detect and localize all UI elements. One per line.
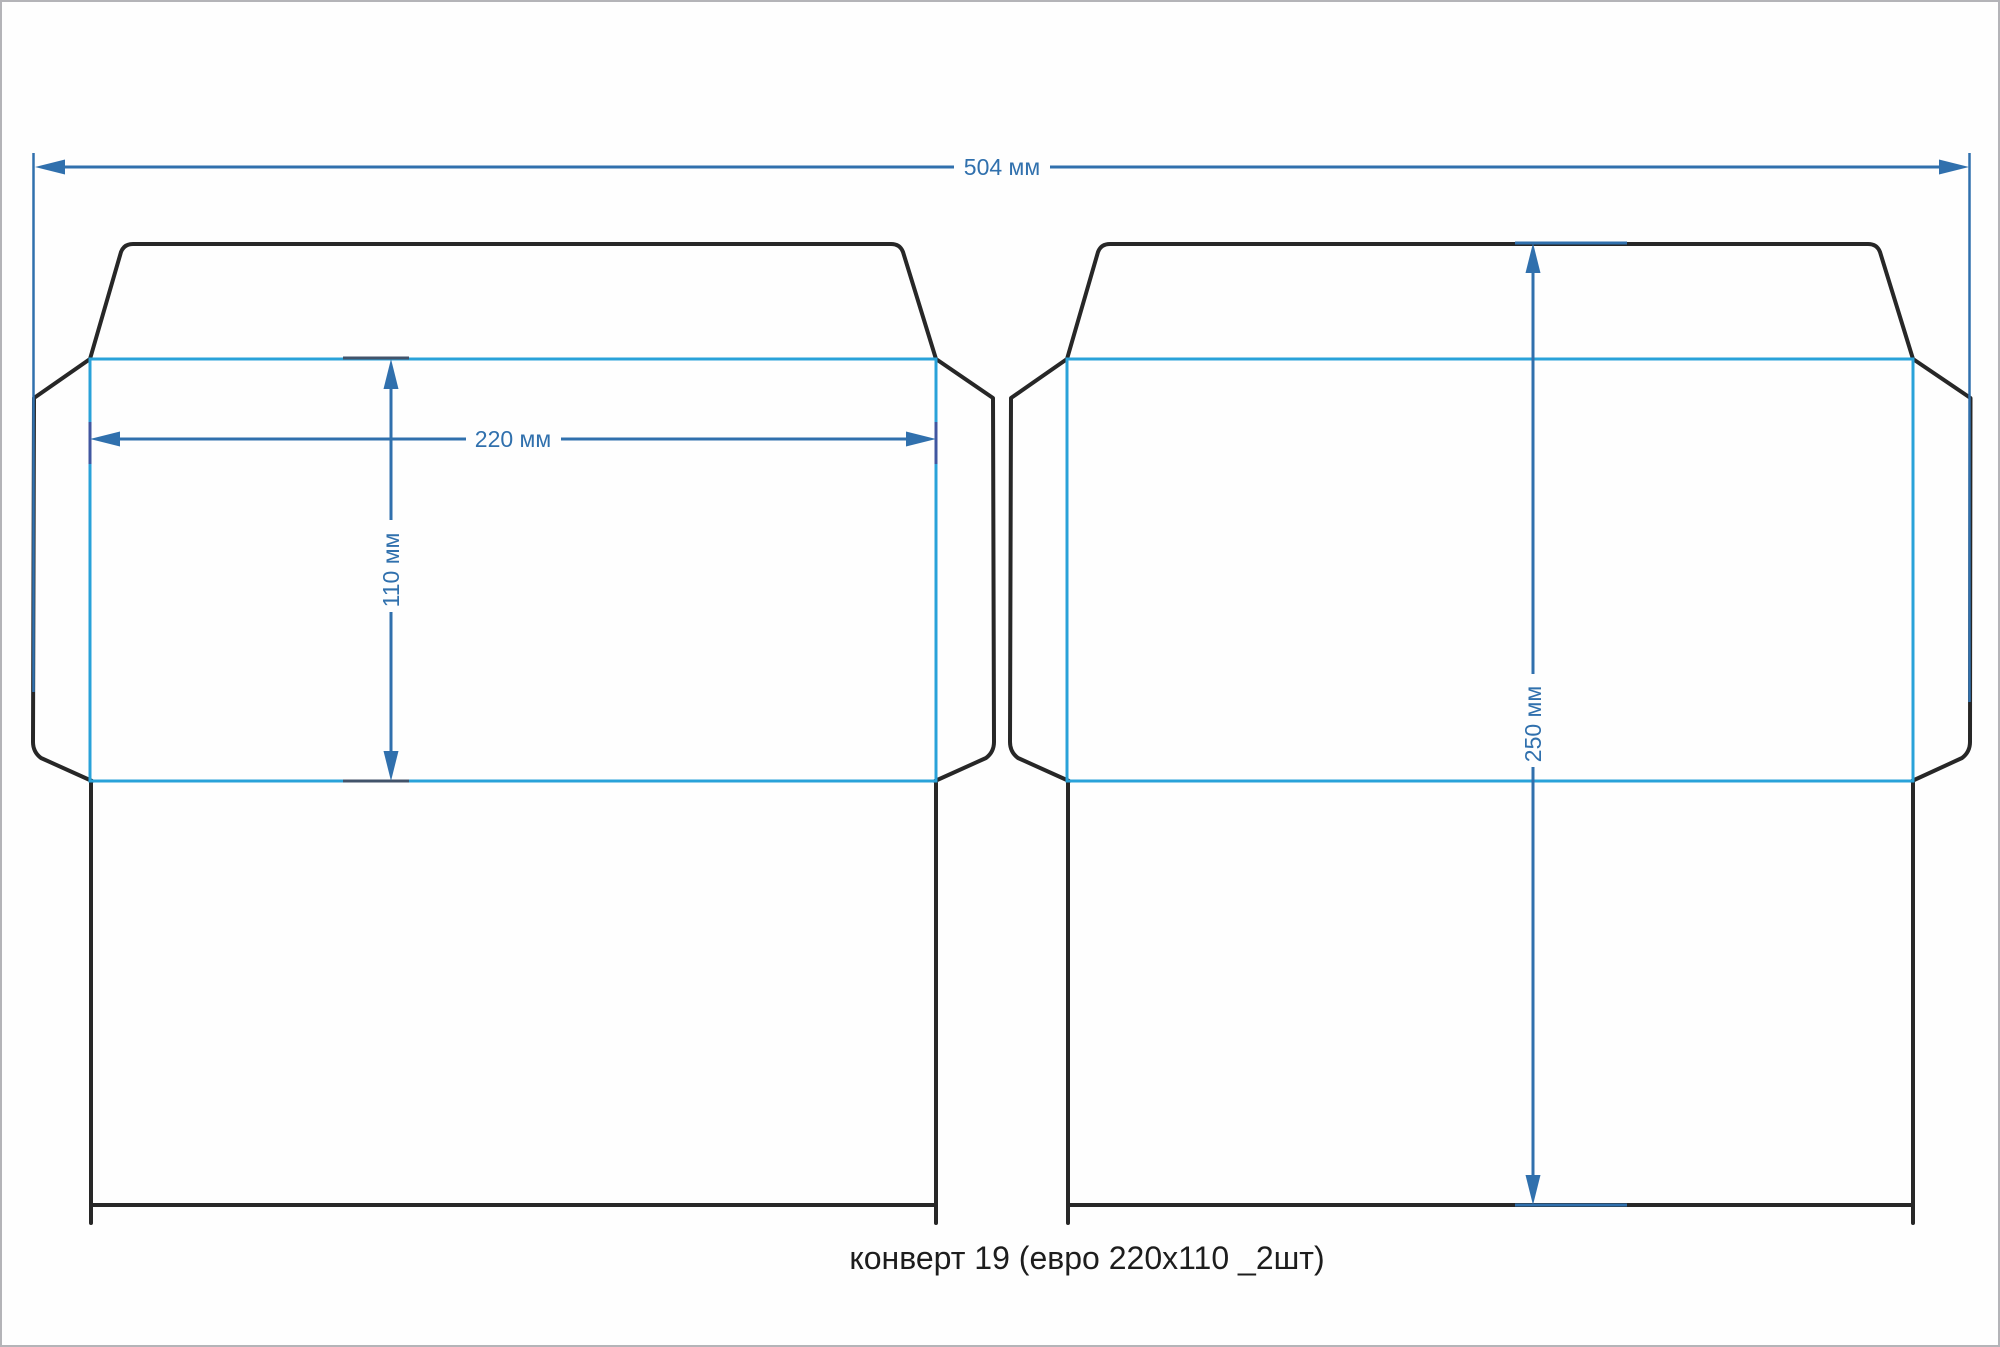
dim-face-width: 220 мм bbox=[90, 422, 936, 464]
dim-face-height: 110 мм bbox=[343, 358, 409, 781]
envelope-left-side-flap-right-cut-line bbox=[935, 359, 994, 781]
envelope-right-seal-flap-cut-line bbox=[1067, 244, 1913, 359]
envelope-left-bottom-flap-cut-line bbox=[91, 781, 936, 1223]
diagram-caption: конверт 19 (евро 220х110 _2шт) bbox=[849, 1240, 1324, 1276]
dim-total-width-arrowhead-right bbox=[1939, 160, 1969, 175]
dim-blank-height-arrowhead-top bbox=[1526, 243, 1541, 273]
dim-total-width-arrowhead-left bbox=[35, 160, 65, 175]
dim-face-height-label: 110 мм bbox=[378, 533, 404, 608]
dim-total-width: 504 мм bbox=[34, 153, 1970, 702]
envelope-left-seal-flap-cut-line bbox=[90, 244, 936, 359]
dim-face-width-arrowhead-right bbox=[906, 432, 936, 447]
envelope-left-fold-line-rect bbox=[90, 359, 936, 781]
dim-total-width-label: 504 мм bbox=[964, 154, 1040, 180]
dim-face-height-arrowhead-top bbox=[384, 359, 399, 389]
dim-face-width-arrowhead-left bbox=[90, 432, 120, 447]
dieline-diagram-canvas: 504 мм 220 мм 110 мм bbox=[0, 0, 2000, 1347]
envelope-right-side-flap-right-cut-line bbox=[1912, 359, 1971, 781]
envelope-left-side-flap-left-cut-line bbox=[33, 359, 92, 781]
dim-blank-height-arrowhead-bottom bbox=[1526, 1175, 1541, 1205]
dim-face-height-arrowhead-bottom bbox=[384, 751, 399, 781]
envelope-right-bottom-flap-cut-line bbox=[1068, 781, 1913, 1223]
dim-face-width-label: 220 мм bbox=[475, 426, 551, 452]
envelope-right-side-flap-left-cut-line bbox=[1010, 359, 1069, 781]
envelope-left bbox=[33, 244, 994, 1223]
envelope-dieline-drawing: 504 мм 220 мм 110 мм bbox=[2, 2, 2000, 1347]
dim-blank-height: 250 мм bbox=[1515, 243, 1627, 1205]
dim-blank-height-label: 250 мм bbox=[1520, 686, 1546, 762]
envelope-right bbox=[1010, 244, 1971, 1223]
envelope-right-fold-line-rect bbox=[1067, 359, 1913, 781]
